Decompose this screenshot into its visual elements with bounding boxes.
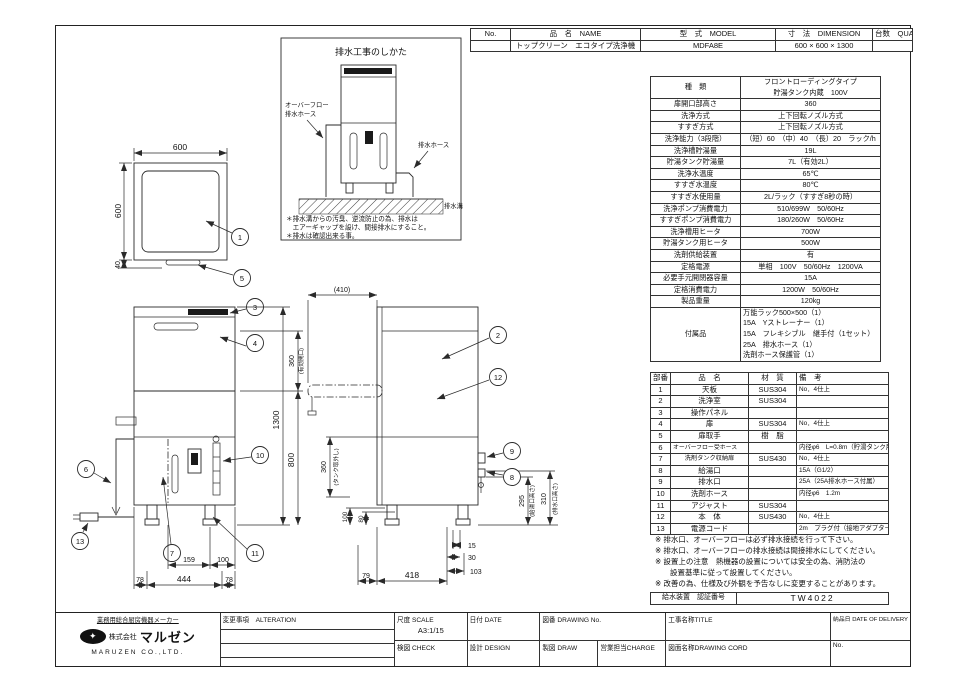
part-remarks: No．4仕上 [797, 419, 889, 431]
spec-label: 洗浄方式 [651, 110, 741, 122]
side-hot-water-port [478, 469, 485, 477]
scale-check-block: 尺度 SCALE A3:1/15 検図 CHECK [395, 613, 468, 666]
spec-value: フロントローディングタイプ 貯湯タンク内蔵 100V [741, 77, 881, 99]
spec-value: 360 [741, 99, 881, 111]
front-detergent-pump [213, 443, 220, 495]
inset-note-2: エアーギャップを設け、間接排水にすること。 [286, 223, 430, 232]
spec-label: 貯湯タンク貯湯量 [651, 157, 741, 169]
spec-value: 単相 100V 50/60Hz 1200VA [741, 261, 881, 273]
part-remarks: 25A（25A排水ホース付属） [797, 477, 889, 489]
part-remarks: No．4仕上 [797, 454, 889, 466]
front-power-plug [80, 513, 98, 521]
spec-value: 上下回転ノズル方式 [741, 110, 881, 122]
part-name: 洗浄室 [671, 396, 749, 408]
part-material [749, 488, 797, 500]
part-name: アジャスト [671, 500, 749, 512]
spec-value: 有 [741, 249, 881, 261]
design-label: 設計 DESIGN [468, 640, 540, 667]
part-name: 操作パネル [671, 407, 749, 419]
inset-overflow-label-2: 排水ホース [285, 109, 316, 118]
part-no: 5 [651, 430, 671, 442]
dim-front-444: 444 [177, 574, 191, 584]
certification-label: 給水装置 認証番号 [651, 593, 737, 605]
parts-row: 2洗浄室SUS304 [651, 396, 889, 408]
part-name: オーバーフロー受ホース [671, 442, 749, 454]
note-line: 設置基準に従って設置してください。 [655, 567, 905, 578]
part-name: 扉取手 [671, 430, 749, 442]
part-remarks [797, 396, 889, 408]
inset-machine-body [341, 65, 396, 183]
spec-label: すすぎ水温度 [651, 180, 741, 192]
top-view-outline [134, 163, 227, 260]
spec-value: 65℃ [741, 168, 881, 180]
note-line: ※ 設置上の注意 熱機器の設置については安全の為、消防法の [655, 556, 905, 567]
scale-value: A3:1/15 [395, 625, 467, 636]
part-no: 10 [651, 488, 671, 500]
date-label: 日付 DATE [468, 613, 540, 640]
part-material: SUS304 [749, 419, 797, 431]
spec-value: 7L（有効2L） [741, 157, 881, 169]
part-no: 11 [651, 500, 671, 512]
company-name-en: MARUZEN CO.,LTD. [56, 649, 220, 656]
drawing-no-label: 図番 DRAWING No. [540, 613, 665, 640]
spec-label: 扉開口部高さ [651, 99, 741, 111]
part-material: SUS304 [749, 500, 797, 512]
part-material [749, 407, 797, 419]
parts-row: 8給湯口15A（G1/2） [651, 465, 889, 477]
spec-value: 万能ラック500×500（1） 15A Yストレーナー（1） 15A フレキシブ… [741, 307, 881, 361]
part-no: 3 [651, 407, 671, 419]
spec-label: すすぎポンプ消費電力 [651, 215, 741, 227]
dim-side-410: (410) [334, 287, 350, 294]
parts-row: 6オーバーフロー受ホース内径φ6 L=0.8m（貯湯タンク用） [651, 442, 889, 454]
dim-side-100: 100 [342, 511, 349, 522]
part-name: 洗剤ホース [671, 488, 749, 500]
inset-door-slot [380, 133, 387, 169]
side-open-door-phantom [308, 385, 382, 397]
part-no: 2 [651, 396, 671, 408]
front-overflow-pipe [116, 439, 134, 513]
top-view-inner [142, 171, 219, 252]
parts-col-no: 部番 [651, 373, 671, 385]
top-view: 600 600 40 1 5 [113, 142, 251, 287]
spec-label: 洗浄能力（3段階） [651, 133, 741, 145]
inset-overflow-label-1: オーバーフロー [285, 101, 329, 109]
certification-table: 給水装置 認証番号 TW4022 [650, 592, 889, 605]
parts-col-remarks: 備 考 [797, 373, 889, 385]
part-name: 給湯口 [671, 465, 749, 477]
dim-side-360: 360 [321, 461, 328, 473]
balloon-1-number: 1 [238, 233, 242, 242]
part-remarks [797, 430, 889, 442]
spec-value: 1200W 50/60Hz [741, 284, 881, 296]
spec-table: 種 類フロントローディングタイプ 貯湯タンク内蔵 100V 扉開口部高さ360 … [650, 76, 881, 362]
spec-label: すすぎ方式 [651, 122, 741, 134]
parts-row: 4扉SUS304No．4仕上 [651, 419, 889, 431]
dim-side-30: 30 [468, 555, 476, 562]
part-name: 本 体 [671, 512, 749, 524]
parts-row: 5扉取手樹 脂 [651, 430, 889, 442]
spec-label: 貯湯タンク用ヒータ [651, 238, 741, 250]
certification-number: TW4022 [737, 593, 889, 605]
inset-switch [365, 131, 373, 144]
maruzen-logo: ✦ [80, 629, 106, 644]
drawingno-block: 図番 DRAWING No. 製図 DRAW 営業担当CHARGE [540, 613, 666, 666]
spec-label: 洗剤供給装置 [651, 249, 741, 261]
spec-value: 19L [741, 145, 881, 157]
spec-value: 500W [741, 238, 881, 250]
spec-label: 製品重量 [651, 296, 741, 308]
balloon-10-number: 10 [256, 451, 264, 460]
dim-side-295: 295 [519, 495, 526, 507]
dim-front-78-right: 78 [225, 577, 233, 584]
balloon-11-number: 11 [251, 549, 259, 558]
dim-800: 800 [286, 453, 296, 467]
part-name: 扉 [671, 419, 749, 431]
col-quantity: 台数 QUANTITY [873, 29, 913, 41]
dim-side-80: 80 [358, 515, 365, 523]
inset-control-panel [344, 68, 392, 74]
part-name: 排水口 [671, 477, 749, 489]
parts-row: 9排水口25A（25A排水ホース付属） [651, 477, 889, 489]
spec-label: 洗浄ポンプ消費電力 [651, 203, 741, 215]
part-material: SUS430 [749, 454, 797, 466]
spec-value: 700W [741, 226, 881, 238]
technical-drawing: 排水工事のしかた オーバーフロー 排水ホース 排水ホース 排水溝 ＊排水溝からの… [50, 25, 650, 610]
drain-instruction-inset: 排水工事のしかた オーバーフロー 排水ホース 排水ホース 排水溝 ＊排水溝からの… [281, 38, 464, 240]
part-material: SUS304 [749, 384, 797, 396]
installation-notes: ※ 排水口、オーバーフローは必ず排水接続を行って下さい。 ※ 排水口、オーバーフ… [655, 534, 905, 589]
delivery-block: 納品日 DATE OF DELIVERY No. [831, 613, 910, 666]
spec-value: （短）60 （中）40 （長）20 ラック/h [741, 133, 881, 145]
inset-note-1: ＊排水溝からの汚臭、逆流防止の為、排水は [286, 214, 418, 223]
spec-value: 80℃ [741, 180, 881, 192]
balloon-3-number: 3 [253, 303, 257, 312]
spec-value: 2L/ラック（すすぎ8秒の時） [741, 191, 881, 203]
inset-drain-trench-label: 排水溝 [444, 201, 464, 210]
check-label: 検図 CHECK [395, 640, 467, 667]
dim-opening-note: (有効開口) [297, 348, 305, 374]
front-control-panel [188, 309, 228, 315]
title-cord-block: 工事名称TITLE 図面名称DRAWING CORD [666, 613, 831, 666]
dim-side-295-note: (給湯口高さ) [528, 485, 536, 517]
note-line: ※ 改善の為、仕様及び外観を予告なしに変更することがあります。 [655, 578, 905, 589]
part-remarks [797, 407, 889, 419]
front-cabinet-slot [172, 455, 178, 493]
dim-top-depth: 600 [113, 204, 123, 218]
inset-door-slot [350, 133, 357, 169]
dim-side-79: 79 [362, 573, 370, 580]
col-model: 型 式 MODEL [641, 29, 776, 41]
side-drain-port [478, 453, 485, 463]
company-name: マルゼン [140, 627, 196, 646]
inset-drain-trench-hatch [299, 199, 443, 214]
part-name: 洗剤タンク収納扉 [671, 454, 749, 466]
balloon-7-number: 7 [170, 549, 174, 558]
front-view: 3 4 10 6 7 11 13 159 100 [72, 299, 269, 590]
spec-value: 180/260W 50/60Hz [741, 215, 881, 227]
drawing-sheet: No. 品 名 NAME 型 式 MODEL 寸 法 DIMENSION 台数 … [0, 0, 972, 688]
title-label: 工事名称TITLE [666, 613, 830, 640]
part-no: 1 [651, 384, 671, 396]
part-remarks: No．4仕上 [797, 384, 889, 396]
company-tagline: 業務用総合厨房機器メーカー [56, 615, 220, 624]
alteration-row [221, 644, 394, 658]
balloon-2-number: 2 [496, 331, 500, 340]
part-material: SUS304 [749, 396, 797, 408]
parts-header-row: 部番 品 名 材 質 備 考 [651, 373, 889, 385]
spec-label: すすぎ水使用量 [651, 191, 741, 203]
parts-row: 11アジャストSUS304 [651, 500, 889, 512]
dim-side-103: 103 [470, 569, 482, 576]
spec-label: 定格電源 [651, 261, 741, 273]
parts-col-name: 品 名 [671, 373, 749, 385]
balloon-5-number: 5 [240, 274, 244, 283]
parts-row: 1天板SUS304No．4仕上 [651, 384, 889, 396]
side-view-outline [377, 307, 478, 505]
charge-label: 営業担当CHARGE [598, 641, 665, 667]
balloon-13-number: 13 [76, 537, 84, 546]
spec-label: 洗浄水温度 [651, 168, 741, 180]
inset-title: 排水工事のしかた [335, 46, 407, 57]
date-design-block: 日付 DATE 設計 DESIGN [468, 613, 541, 666]
dim-side-360-note: (タンク取外し) [332, 448, 340, 485]
dim-top-40: 40 [115, 261, 122, 269]
part-remarks: 15A（G1/2） [797, 465, 889, 477]
col-dimension: 寸 法 DIMENSION [776, 29, 873, 41]
spec-label: 定格消費電力 [651, 284, 741, 296]
spec-value: 510/699W 50/60Hz [741, 203, 881, 215]
parts-table: 部番 品 名 材 質 備 考 1天板SUS304No．4仕上 2洗浄室SUS30… [650, 372, 889, 535]
parts-row: 7洗剤タンク収納扉SUS430No．4仕上 [651, 454, 889, 466]
part-material [749, 465, 797, 477]
side-view: (410) 360 (タンク取外し) 100 80 295 (給湯口高さ) 31… [308, 287, 559, 585]
dim-front-78-left: 78 [136, 577, 144, 584]
product-model: MDFA8E [641, 40, 776, 52]
inset-note-3: ＊排水は確認出来る事。 [286, 231, 359, 240]
spec-value: 上下回転ノズル方式 [741, 122, 881, 134]
part-remarks [797, 500, 889, 512]
inset-overflow-hose [326, 125, 341, 197]
dim-top-width: 600 [173, 142, 187, 152]
inset-drain-hose [396, 173, 413, 197]
top-view-handle [166, 260, 200, 265]
alteration-row [221, 630, 394, 644]
part-no: 12 [651, 512, 671, 524]
company-block: 業務用総合厨房機器メーカー ✦ 株式会社 マルゼン MARUZEN CO.,LT… [56, 613, 221, 666]
parts-row: 3操作パネル [651, 407, 889, 419]
part-material [749, 477, 797, 489]
alteration-block: 変更事項 ALTERATION [221, 613, 395, 666]
spec-label: 種 類 [651, 77, 741, 99]
spec-label: 付属品 [651, 307, 741, 361]
parts-col-material: 材 質 [749, 373, 797, 385]
part-remarks: No．4仕上 [797, 512, 889, 524]
parts-row: 12本 体SUS430No．4仕上 [651, 512, 889, 524]
balloon-9-number: 9 [510, 447, 514, 456]
part-no: 9 [651, 477, 671, 489]
part-remarks: 内径φ6 L=0.8m（貯湯タンク用） [797, 442, 889, 454]
part-name: 天板 [671, 384, 749, 396]
dim-side-418: 418 [405, 570, 419, 580]
dim-overall-height-1300: 1300 [271, 410, 281, 429]
part-material [749, 442, 797, 454]
note-line: ※ 排水口、オーバーフローは必ず排水接続を行って下さい。 [655, 534, 905, 545]
cord-label: 図面名称DRAWING CORD [666, 640, 830, 667]
company-prefix: 株式会社 [109, 632, 137, 642]
spec-label: 洗浄槽用ヒータ [651, 226, 741, 238]
dim-side-310-note: (排水口高さ) [551, 483, 559, 515]
title-block: 業務用総合厨房機器メーカー ✦ 株式会社 マルゼン MARUZEN CO.,LT… [55, 612, 911, 667]
draw-label: 製図 DRAW [540, 641, 598, 667]
spec-value: 15A [741, 273, 881, 285]
part-material: SUS430 [749, 512, 797, 524]
balloon-4-number: 4 [253, 339, 257, 348]
part-remarks: 内径φ6 1.2m [797, 488, 889, 500]
balloon-6-number: 6 [84, 465, 88, 474]
part-no: 6 [651, 442, 671, 454]
product-dimension: 600 × 600 × 1300 [776, 40, 873, 52]
parts-row: 10洗剤ホース内径φ6 1.2m [651, 488, 889, 500]
note-line: ※ 排水口、オーバーフローの排水接続は間接排水にしてください。 [655, 545, 905, 556]
front-door-handle [154, 323, 198, 330]
dim-side-310: 310 [541, 493, 548, 505]
inset-drain-hose-label: 排水ホース [418, 140, 449, 149]
scale-label: 尺度 SCALE [395, 613, 467, 625]
part-no: 8 [651, 465, 671, 477]
front-overflow-funnel [116, 417, 136, 425]
dim-side-15: 15 [468, 543, 476, 550]
delivery-no-label: No. [831, 640, 910, 667]
balloon-8-number: 8 [510, 473, 514, 482]
part-material: 樹 脂 [749, 430, 797, 442]
dim-opening-360: 360 [289, 355, 296, 367]
balloon-12-number: 12 [494, 373, 502, 382]
part-no: 7 [651, 454, 671, 466]
part-no: 4 [651, 419, 671, 431]
spec-value: 120kg [741, 296, 881, 308]
alteration-label: 変更事項 ALTERATION [221, 613, 394, 630]
dim-front-159: 159 [183, 557, 195, 564]
delivery-label: 納品日 DATE OF DELIVERY [831, 613, 910, 640]
spec-label: 洗浄槽貯湯量 [651, 145, 741, 157]
spec-label: 必要手元開閉器容量 [651, 273, 741, 285]
product-quantity [873, 40, 913, 52]
dim-front-100: 100 [217, 557, 229, 564]
